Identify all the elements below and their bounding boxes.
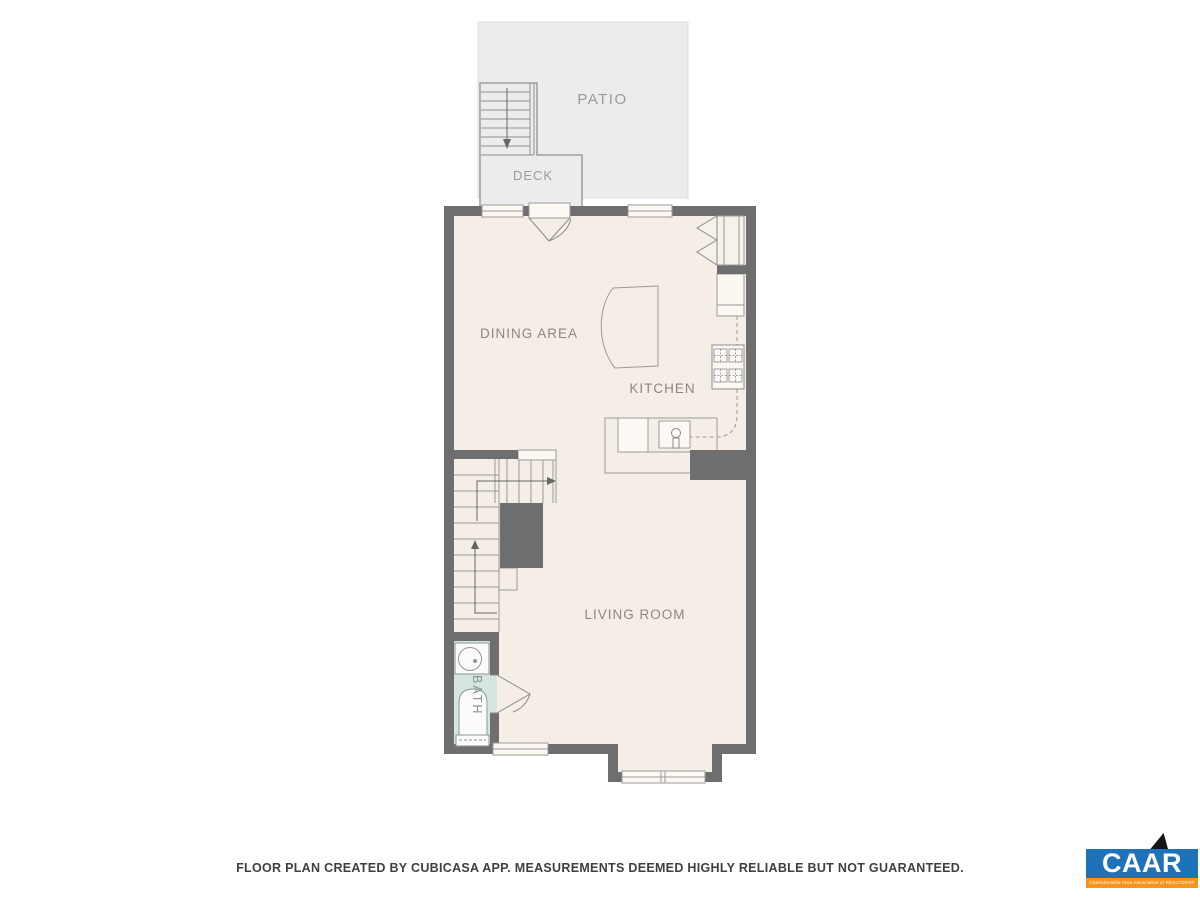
floor-plan-drawing [0, 0, 1200, 900]
caar-logo: CAAR Charlottesville Area Association of… [1086, 833, 1198, 889]
kitchen-sink [659, 421, 690, 448]
kitchen-label: KITCHEN [610, 381, 715, 396]
window-top-right [628, 205, 672, 217]
stove [712, 345, 744, 389]
caar-logo-acronym: CAAR [1086, 849, 1198, 878]
interior-floor [454, 216, 746, 776]
kitchen-island [601, 286, 658, 368]
caar-logo-tagline: Charlottesville Area Association of REAL… [1086, 878, 1198, 888]
disclaimer-text: FLOOR PLAN CREATED BY CUBICASA APP. MEAS… [0, 861, 1200, 875]
bath-label: BATH [462, 664, 484, 726]
deck-label: DECK [500, 168, 566, 183]
window-bottom-left [493, 743, 548, 755]
stairs-landing-rail [518, 450, 556, 460]
window-top-left [482, 205, 523, 217]
patio-label: PATIO [555, 91, 650, 108]
dining-area-label: DINING AREA [464, 326, 594, 341]
floor-plan-page: PATIO DECK DINING AREA KITCHEN LIVING RO… [0, 0, 1200, 900]
fridge-counter [717, 274, 744, 316]
window-bay [622, 771, 705, 783]
caar-logo-triangle-icon [1148, 833, 1168, 849]
living-room-label: LIVING ROOM [572, 607, 698, 622]
